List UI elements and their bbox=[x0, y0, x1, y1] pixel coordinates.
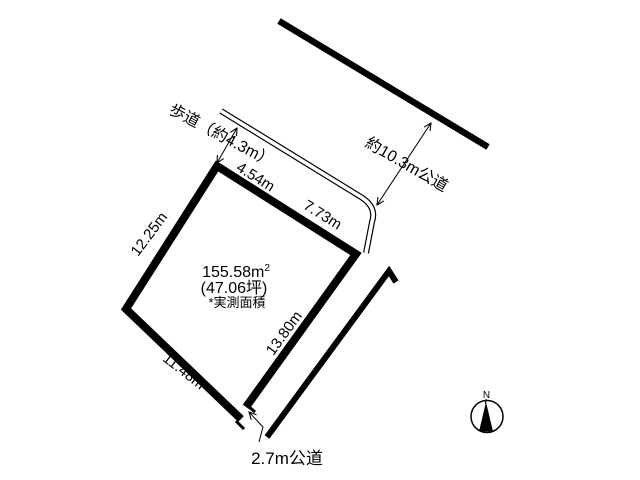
area-square-meters: 155.58m2 bbox=[202, 263, 270, 281]
north-road-label: 約10.3m公道 bbox=[362, 134, 451, 196]
dim-label-bottom: 11.48m bbox=[159, 350, 208, 394]
compass-north-label: N bbox=[483, 390, 490, 401]
compass: N bbox=[471, 390, 503, 433]
dim-label-top-right: 7.73m bbox=[300, 197, 344, 234]
land-plot-diagram: 4.54m 7.73m 12.25m 11.48m 13.80m 歩道（約4.3… bbox=[0, 0, 640, 480]
boundary-extension-dash bbox=[236, 421, 244, 429]
area-superscript: 2 bbox=[264, 263, 270, 274]
area-value: 155.58m bbox=[202, 264, 264, 281]
south-road-label: 2.7m公道 bbox=[251, 449, 323, 468]
north-road-line bbox=[279, 21, 488, 147]
compass-needle-icon bbox=[479, 402, 493, 432]
south-road-leader bbox=[249, 412, 263, 442]
plot-survey-page: 4.54m 7.73m 12.25m 11.48m 13.80m 歩道（約4.3… bbox=[0, 0, 640, 480]
area-note: *実測面積 bbox=[208, 295, 265, 310]
